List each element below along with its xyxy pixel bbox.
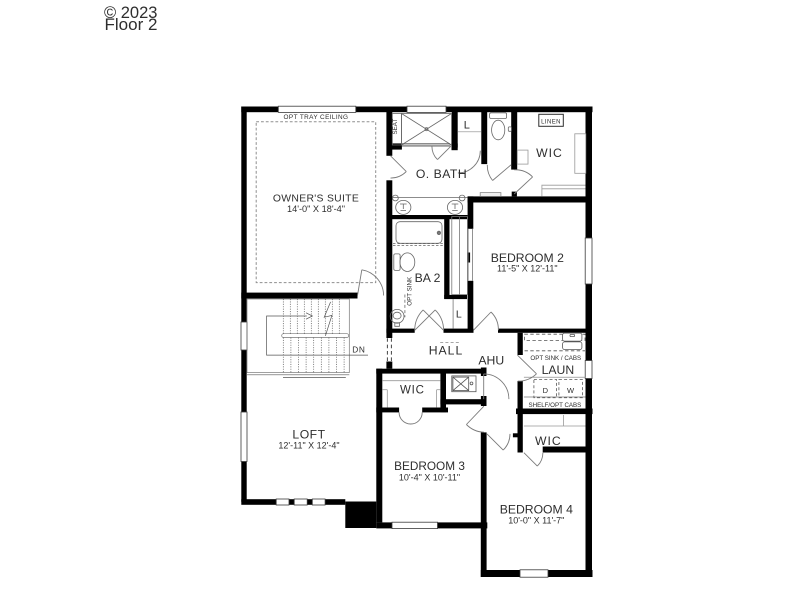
svg-text:W: W: [567, 386, 575, 395]
svg-text:WIC: WIC: [400, 385, 425, 397]
svg-text:OPT SINK: OPT SINK: [407, 276, 414, 306]
svg-text:10'-0" X 11'-7": 10'-0" X 11'-7": [508, 516, 564, 526]
svg-text:Floor 2: Floor 2: [105, 15, 158, 34]
svg-text:WIC: WIC: [535, 434, 562, 448]
svg-text:HALL: HALL: [429, 344, 464, 358]
svg-text:D: D: [543, 386, 549, 395]
svg-text:BA 2: BA 2: [415, 271, 441, 285]
svg-text:DN: DN: [352, 344, 365, 354]
svg-text:10'-4" X 10'-11": 10'-4" X 10'-11": [399, 473, 460, 483]
svg-text:14'-0" X 18'-4": 14'-0" X 18'-4": [287, 204, 345, 214]
svg-text:11'-5" X 12'-11": 11'-5" X 12'-11": [497, 264, 558, 274]
svg-text:WIC: WIC: [536, 146, 563, 160]
svg-text:LOFT: LOFT: [292, 428, 325, 442]
svg-text:BEDROOM 3: BEDROOM 3: [394, 459, 465, 473]
svg-text:O. BATH: O. BATH: [416, 167, 467, 181]
svg-text:SHELF/OPT CABS: SHELF/OPT CABS: [528, 402, 581, 409]
svg-text:L: L: [464, 120, 470, 132]
svg-text:AHU: AHU: [478, 354, 504, 368]
svg-text:BEDROOM 4: BEDROOM 4: [500, 503, 573, 517]
svg-text:SEAT: SEAT: [392, 119, 399, 135]
svg-text:OWNER'S SUITE: OWNER'S SUITE: [273, 194, 359, 205]
svg-text:OPT SINK / CABS: OPT SINK / CABS: [530, 355, 581, 362]
svg-text:12'-11" X 12'-4": 12'-11" X 12'-4": [278, 441, 339, 451]
svg-text:LINEN: LINEN: [541, 119, 561, 125]
svg-text:LAUN: LAUN: [542, 363, 575, 377]
svg-text:L: L: [456, 309, 462, 321]
svg-text:OPT TRAY CEILING: OPT TRAY CEILING: [284, 114, 349, 121]
